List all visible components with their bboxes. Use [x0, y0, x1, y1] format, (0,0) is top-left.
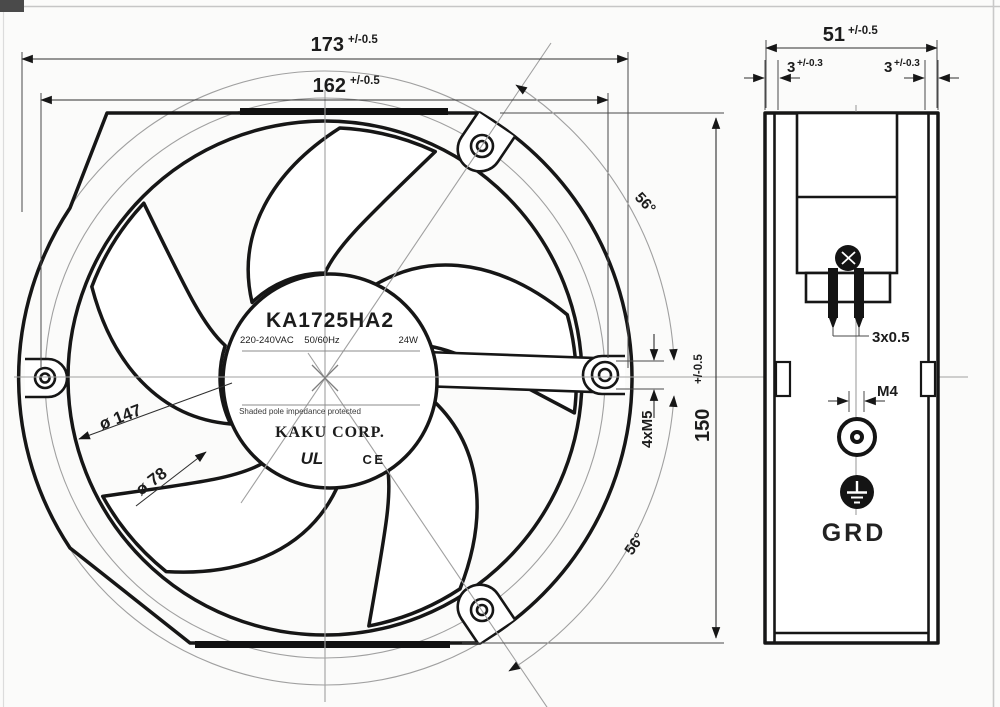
terminal-base	[806, 273, 890, 302]
dim-holes-value: 4xM5	[639, 410, 656, 448]
protection-note: Shaded pole impedance protected	[239, 407, 361, 416]
side-view: 3x0.5 M4 GRD	[744, 24, 959, 643]
hub-label-circle	[223, 274, 437, 488]
dim-dia-ring-value: ø 147	[97, 400, 144, 433]
mounting-ear-right	[583, 356, 625, 394]
technical-drawing-sheet: KA1725HA2 220-240VAC 50/60Hz 24W Shaded …	[0, 0, 1000, 707]
brand-name: KAKU CORP.	[275, 424, 385, 441]
terminal-pin-left	[828, 268, 838, 318]
mounting-ear-left	[25, 359, 67, 397]
model-number: KA1725HA2	[266, 309, 394, 332]
dim-depth-tol: +/-0.5	[848, 25, 878, 37]
dim-flange-left: 3 +/-0.3	[744, 58, 823, 110]
dim-lead-wire-value: 3x0.5	[872, 329, 910, 346]
wall-notch-right	[921, 362, 935, 396]
voltage-rating: 220-240VAC	[240, 335, 294, 346]
support-strut	[420, 352, 594, 392]
dim-angle-bottom-value: 56°	[621, 530, 648, 558]
dim-height-tol: +/-0.5	[693, 354, 705, 384]
dim-flange-right: 3 +/-0.3	[884, 58, 959, 110]
dim-height-value: 150	[692, 409, 714, 442]
dim-width-inner-value: 162	[313, 75, 346, 97]
dim-flange-left-value: 3	[787, 59, 795, 76]
power-rating: 24W	[398, 335, 418, 346]
dim-flange-right-tol: +/-0.3	[894, 58, 920, 69]
dim-width-outer-value: 173	[311, 34, 344, 56]
ground-terminal-icon	[840, 475, 874, 509]
dim-width-inner-tol: +/-0.5	[350, 75, 380, 87]
terminal-pin-right	[854, 268, 864, 318]
dim-flange-right-value: 3	[884, 59, 892, 76]
dim-depth-value: 51	[823, 24, 845, 46]
dim-angle-top-value: 56°	[631, 189, 659, 217]
ground-label: GRD	[822, 519, 887, 547]
photo-corner-artifact	[0, 0, 24, 12]
dim-thread-value: M4	[877, 383, 898, 400]
frequency-rating: 50/60Hz	[304, 335, 340, 346]
dim-flange-left-tol: +/-0.3	[797, 58, 823, 69]
wall-notch-left	[776, 362, 790, 396]
ce-mark-icon: CE	[362, 452, 385, 467]
fan-drawing: KA1725HA2 220-240VAC 50/60Hz 24W Shaded …	[0, 0, 1000, 707]
m4-boss	[839, 419, 875, 455]
dim-width-outer-tol: +/-0.5	[348, 34, 378, 46]
ul-mark-icon: UL	[301, 449, 324, 468]
